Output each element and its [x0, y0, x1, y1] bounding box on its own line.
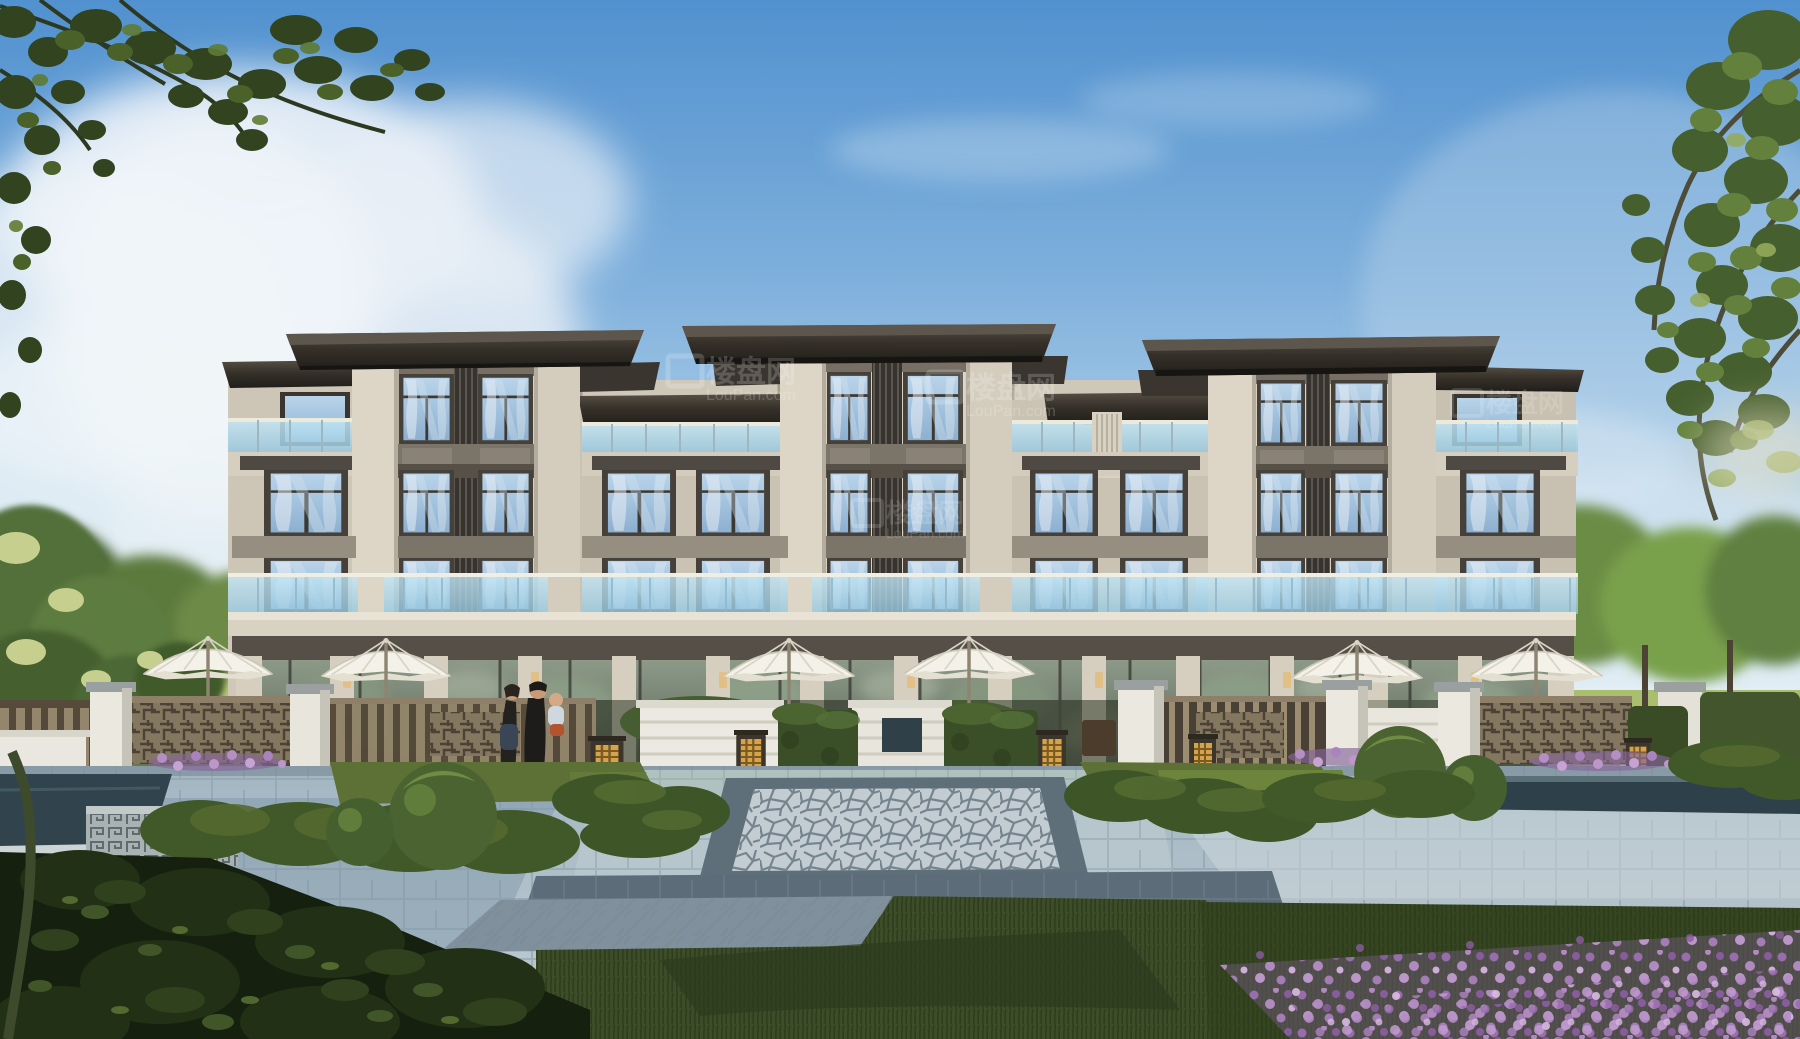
- svg-text:LouPan.com: LouPan.com: [1486, 415, 1565, 431]
- svg-text:楼盘网: 楼盘网: [706, 355, 796, 389]
- svg-text:LouPan.com: LouPan.com: [886, 525, 965, 541]
- svg-text:楼盘网: 楼盘网: [1486, 388, 1564, 418]
- svg-text:楼盘网: 楼盘网: [886, 498, 964, 528]
- svg-text:楼盘网: 楼盘网: [966, 371, 1056, 405]
- svg-text:LouPan.com: LouPan.com: [706, 387, 796, 404]
- svg-text:LouPan.com: LouPan.com: [966, 403, 1056, 420]
